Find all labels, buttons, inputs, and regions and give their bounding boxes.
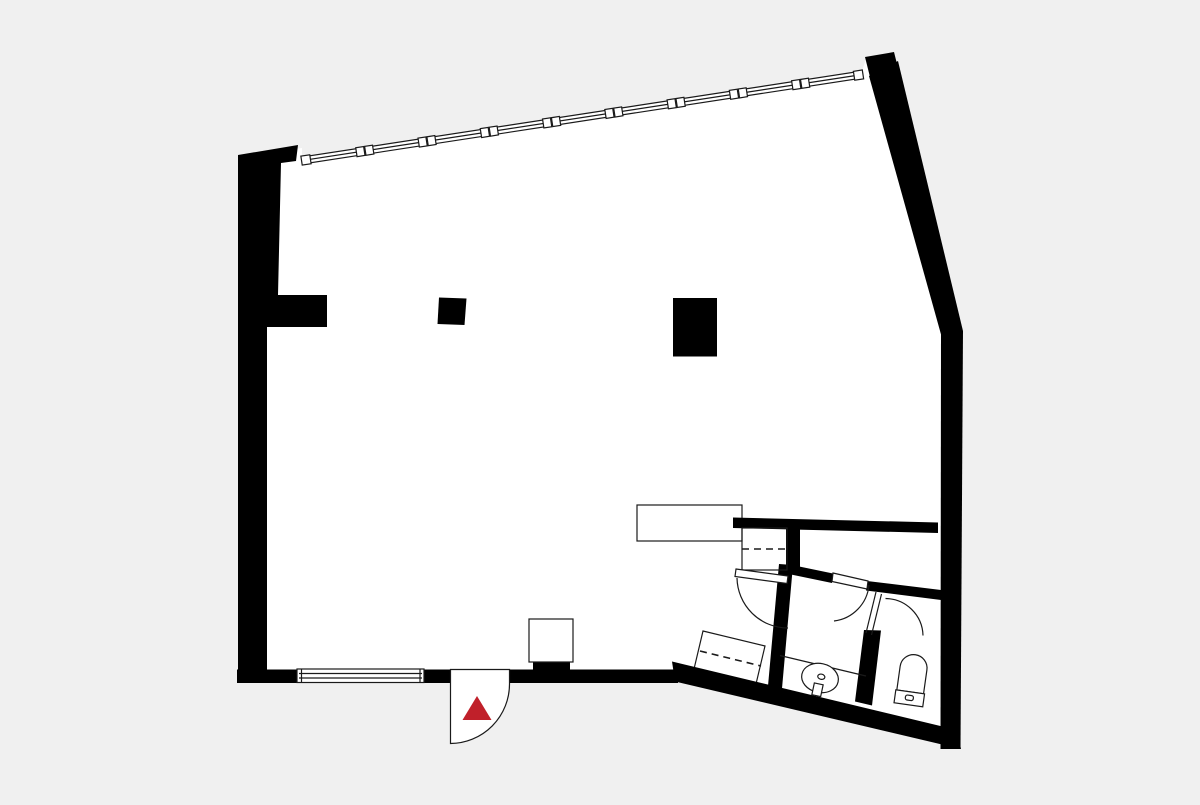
basin-faucet: [812, 683, 823, 697]
entry-pedestal: [529, 619, 573, 662]
bottom-wall-mid: [424, 670, 451, 684]
large-rect-column: [673, 298, 717, 357]
counter-sideboard: [637, 505, 742, 541]
toilet-button: [905, 695, 914, 701]
hall-stub: [786, 527, 800, 570]
bottom-window: [297, 669, 424, 683]
right-wall-vertical: [941, 331, 964, 749]
bottom-wall-right: [509, 670, 678, 684]
floor-plan: [0, 0, 1200, 800]
basin-drain: [817, 673, 825, 680]
bottom-wall-left: [237, 670, 298, 684]
window-end-cap: [853, 70, 863, 80]
small-square-column: [438, 298, 467, 326]
floor-plan-svg: [0, 0, 1200, 800]
window-end-cap: [301, 155, 311, 165]
